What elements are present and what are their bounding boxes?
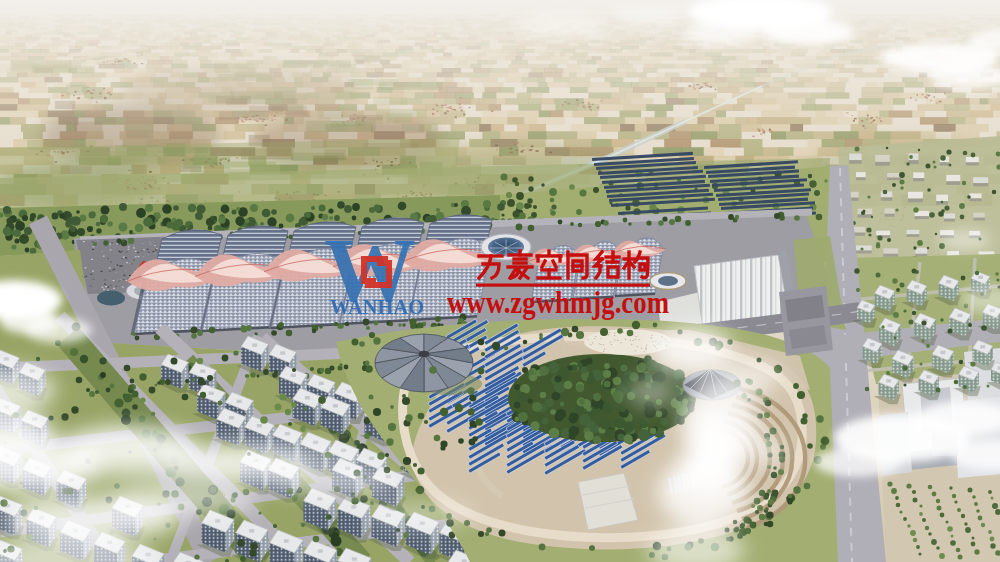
svg-text:WANHAO: WANHAO xyxy=(330,296,424,318)
svg-text:www.zgwhmjg.com: www.zgwhmjg.com xyxy=(447,285,669,320)
